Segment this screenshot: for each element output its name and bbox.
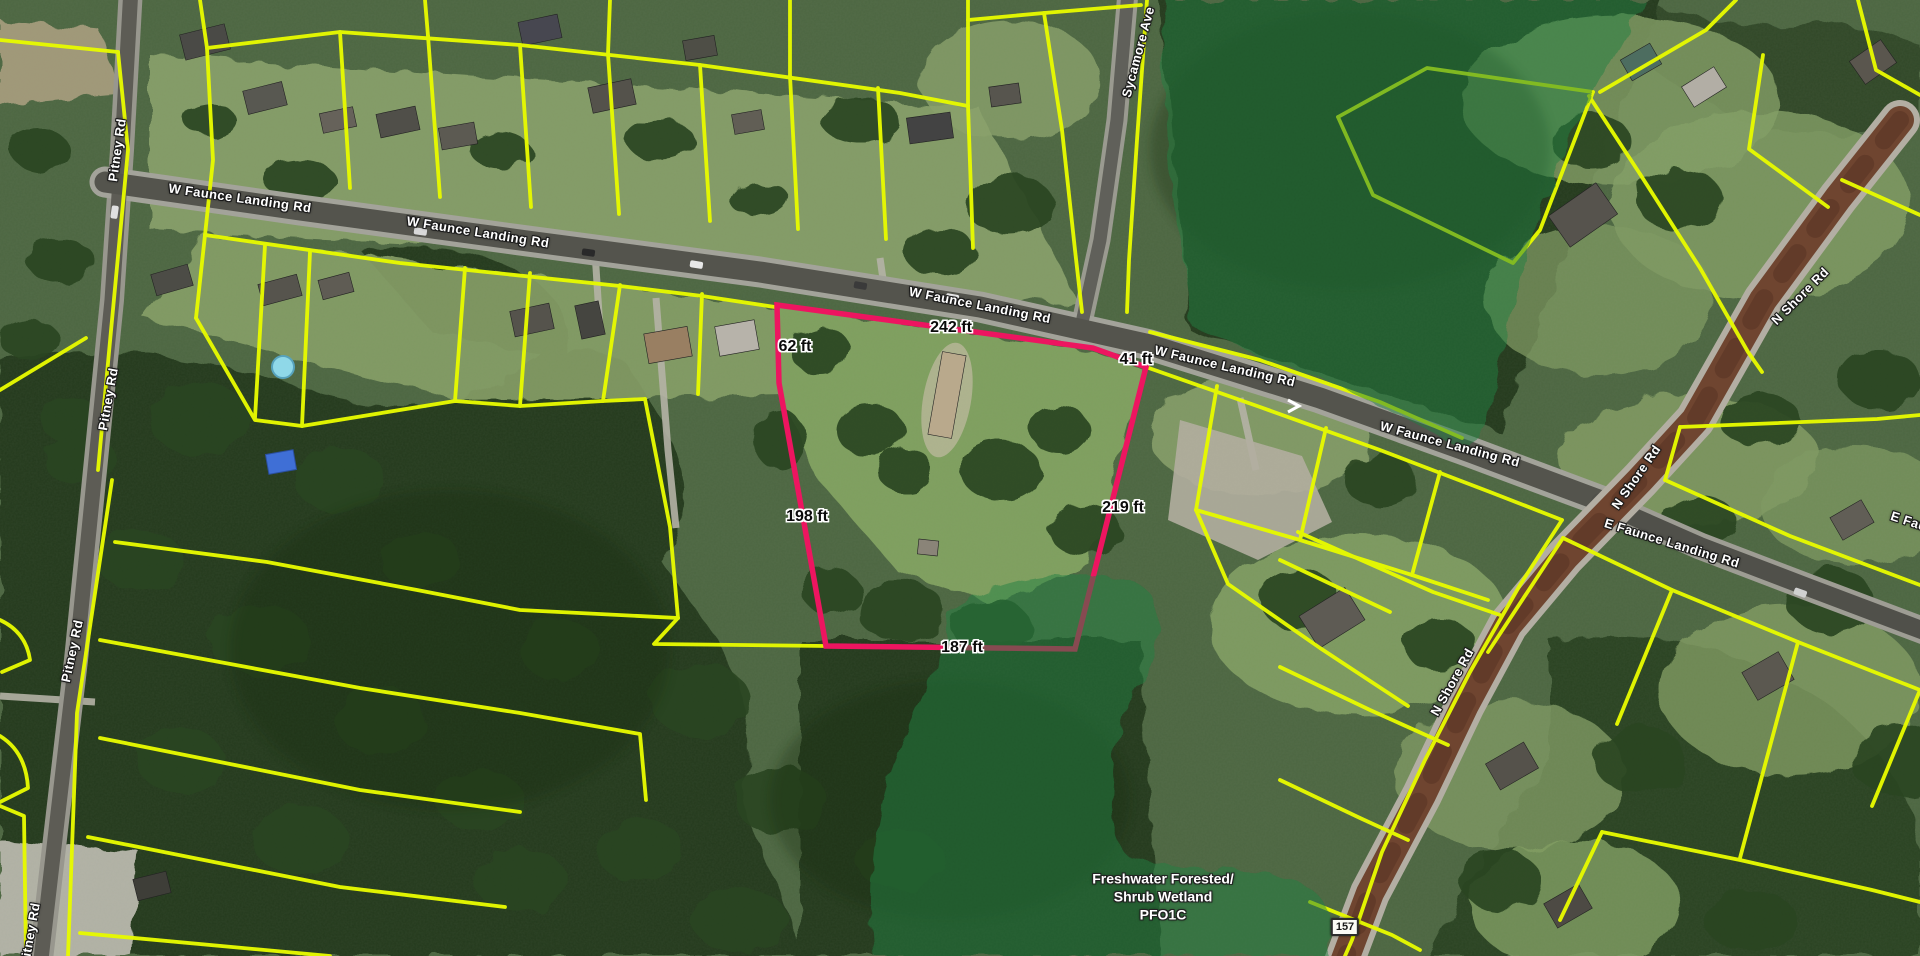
map-imagery bbox=[0, 0, 1920, 956]
satellite-map[interactable]: Pitney RdPitney RdPitney RdPitney RdW Fa… bbox=[0, 0, 1920, 956]
